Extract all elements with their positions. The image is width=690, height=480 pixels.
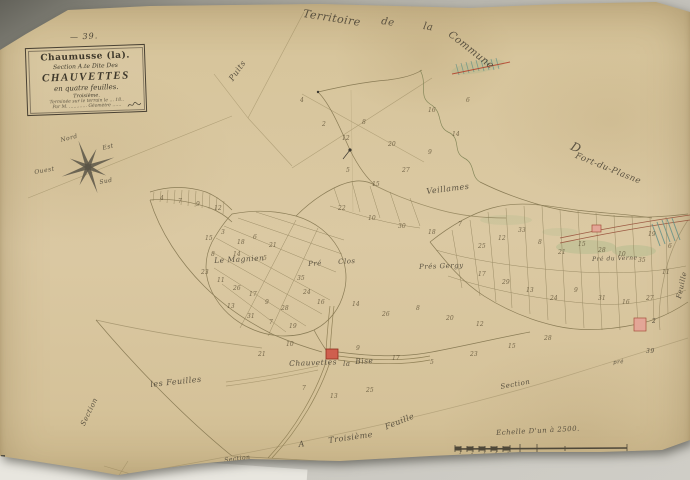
map-label: Veillames (426, 183, 470, 196)
parcel-number: 25 (366, 388, 374, 394)
parcel-number: 13 (330, 394, 338, 400)
parcel-number: 12 (214, 206, 222, 212)
parcel-number: 10 (618, 252, 626, 258)
parcel-number: 8 (416, 306, 420, 312)
map-label: Section (500, 379, 531, 391)
parcel-number: 9 (356, 346, 360, 352)
map-label: 5 (507, 451, 510, 455)
parcel-number: 15 (578, 242, 586, 248)
parcel-number: 35 (638, 258, 646, 264)
parcel-number: 24 (550, 296, 558, 302)
parcel-number: 14 (233, 252, 241, 258)
map-label: Est (102, 143, 114, 152)
parcel-number: 16 (428, 108, 436, 114)
map-label: Pré du Verne (592, 255, 638, 263)
parcel-number: 9 (196, 202, 200, 208)
parcel-number: 6 (668, 244, 672, 250)
parcel-number: 4 (300, 98, 304, 104)
parcel-number: 2 (322, 122, 326, 128)
map-label: Fort-du-Plasne (574, 152, 642, 186)
parcel-number: 12 (476, 322, 484, 328)
map-label: 1 (459, 451, 462, 455)
parcel-number: 14 (352, 302, 360, 308)
parcel-number: 7 (302, 386, 306, 392)
signature-scribble-icon (127, 100, 143, 110)
parcel-number: 28 (544, 336, 552, 342)
parcel-number: 8 (211, 252, 215, 258)
parcel-number: 15 (205, 236, 213, 242)
parcel-number: 5 (430, 360, 434, 366)
map-label: les Feuilles (150, 376, 202, 389)
map-label: Chauvettes (289, 358, 337, 367)
map-label: Territoire (302, 8, 361, 28)
parcel-number: 28 (281, 306, 289, 312)
parcel-number: 23 (470, 352, 478, 358)
parcel-number: 5 (346, 168, 350, 174)
map-label: Ouest (34, 166, 55, 175)
parcel-number: 10 (286, 342, 294, 348)
parcel-number: 4 (160, 196, 164, 202)
map-label: 2 (652, 319, 656, 325)
parcel-number: 7 (269, 320, 273, 326)
map-sheet-wrap: TerritoiredelaCommuneDFort-du-PlasneNord… (0, 0, 690, 480)
parcel-number: 16 (622, 300, 630, 306)
parcel-number: 28 (598, 248, 606, 254)
scan-viewport: TerritoiredelaCommuneDFort-du-PlasneNord… (0, 0, 690, 480)
map-label: pré (613, 360, 624, 366)
map-label: 39 (646, 349, 655, 355)
map-label: Prés Gergy (419, 262, 464, 271)
map-label: Pré (308, 260, 322, 268)
parcel-number: 11 (662, 270, 670, 276)
parcel-number: 24 (303, 290, 311, 296)
cartouche: Chaumusse (la). Section A.te Dite Des CH… (25, 44, 147, 116)
parcel-number: 10 (368, 216, 376, 222)
parcel-number: 27 (402, 168, 410, 174)
parcel-number: 18 (237, 240, 245, 246)
map-label: Bise (355, 357, 374, 365)
parcel-number: 26 (382, 312, 390, 318)
parcel-number: 14 (452, 132, 460, 138)
map-label: la (343, 361, 351, 368)
parcel-number: 27 (646, 296, 654, 302)
map-label: 3 (483, 451, 486, 455)
parcel-number: 11 (217, 278, 225, 284)
parcel-number: 7 (178, 199, 182, 205)
parcel-number: 12 (342, 136, 350, 142)
parcel-number: 19 (648, 232, 656, 238)
parcel-number: 17 (392, 356, 400, 362)
parcel-number: 15 (372, 182, 380, 188)
parcel-number: 22 (338, 206, 346, 212)
parcel-number: 7 (458, 222, 462, 228)
map-label: Section (80, 397, 100, 427)
parcel-number: 23 (201, 270, 209, 276)
parcel-number: 35 (297, 276, 305, 282)
parcel-number: 13 (227, 304, 235, 310)
parcel-number: 17 (249, 292, 257, 298)
parcel-number: 6 (253, 235, 257, 241)
parcel-number: 6 (466, 98, 470, 104)
map-label: A (298, 440, 305, 449)
map-label: Puits (228, 59, 248, 82)
parcel-number: 9 (265, 300, 269, 306)
map-label: Nord (60, 134, 79, 144)
parcel-number: 16 (317, 300, 325, 306)
parcel-number: 8 (538, 240, 542, 246)
map-label: 4 (495, 451, 498, 455)
parcel-number: 13 (526, 288, 534, 294)
parcel-number: 31 (598, 296, 606, 302)
parcel-number: 3 (221, 230, 225, 236)
map-label: de (380, 17, 395, 29)
map-label: la (422, 22, 434, 34)
parcel-number: 29 (502, 280, 510, 286)
parcel-number: 12 (498, 236, 506, 242)
parcel-number: 19 (289, 324, 297, 330)
parcel-number: 9 (574, 288, 578, 294)
parcel-number: 21 (558, 250, 566, 256)
parcel-number: 21 (269, 243, 277, 249)
parcel-number: 21 (258, 352, 266, 358)
parcel-number: 20 (388, 142, 396, 148)
map-label: Feuille (676, 271, 689, 299)
parcel-number: 15 (508, 344, 516, 350)
map-label: Section (224, 455, 251, 464)
map-label: Troisième (328, 431, 373, 445)
map-label: Clos (338, 258, 356, 266)
parcel-number: 31 (247, 314, 255, 320)
parcel-number: 18 (428, 230, 436, 236)
map-label: Feuille (384, 412, 416, 431)
parcel-number: 25 (478, 244, 486, 250)
map-label: 2 (471, 451, 474, 455)
parcel-number: 20 (446, 316, 454, 322)
map-sheet: TerritoiredelaCommuneDFort-du-PlasneNord… (0, 0, 690, 480)
parcel-number: 8 (362, 120, 366, 126)
map-label: Echelle D'un à 2500. (496, 426, 580, 437)
parcel-number: 30 (398, 224, 406, 230)
parcel-number: 5 (263, 256, 267, 262)
parcel-number: 33 (518, 228, 526, 234)
sheet-number: — 39. (70, 31, 99, 41)
map-label: Sud (99, 178, 113, 186)
map-label: Commune (446, 30, 495, 72)
parcel-number: 26 (233, 286, 241, 292)
parcel-number: 17 (478, 272, 486, 278)
parcel-number: 9 (428, 150, 432, 156)
